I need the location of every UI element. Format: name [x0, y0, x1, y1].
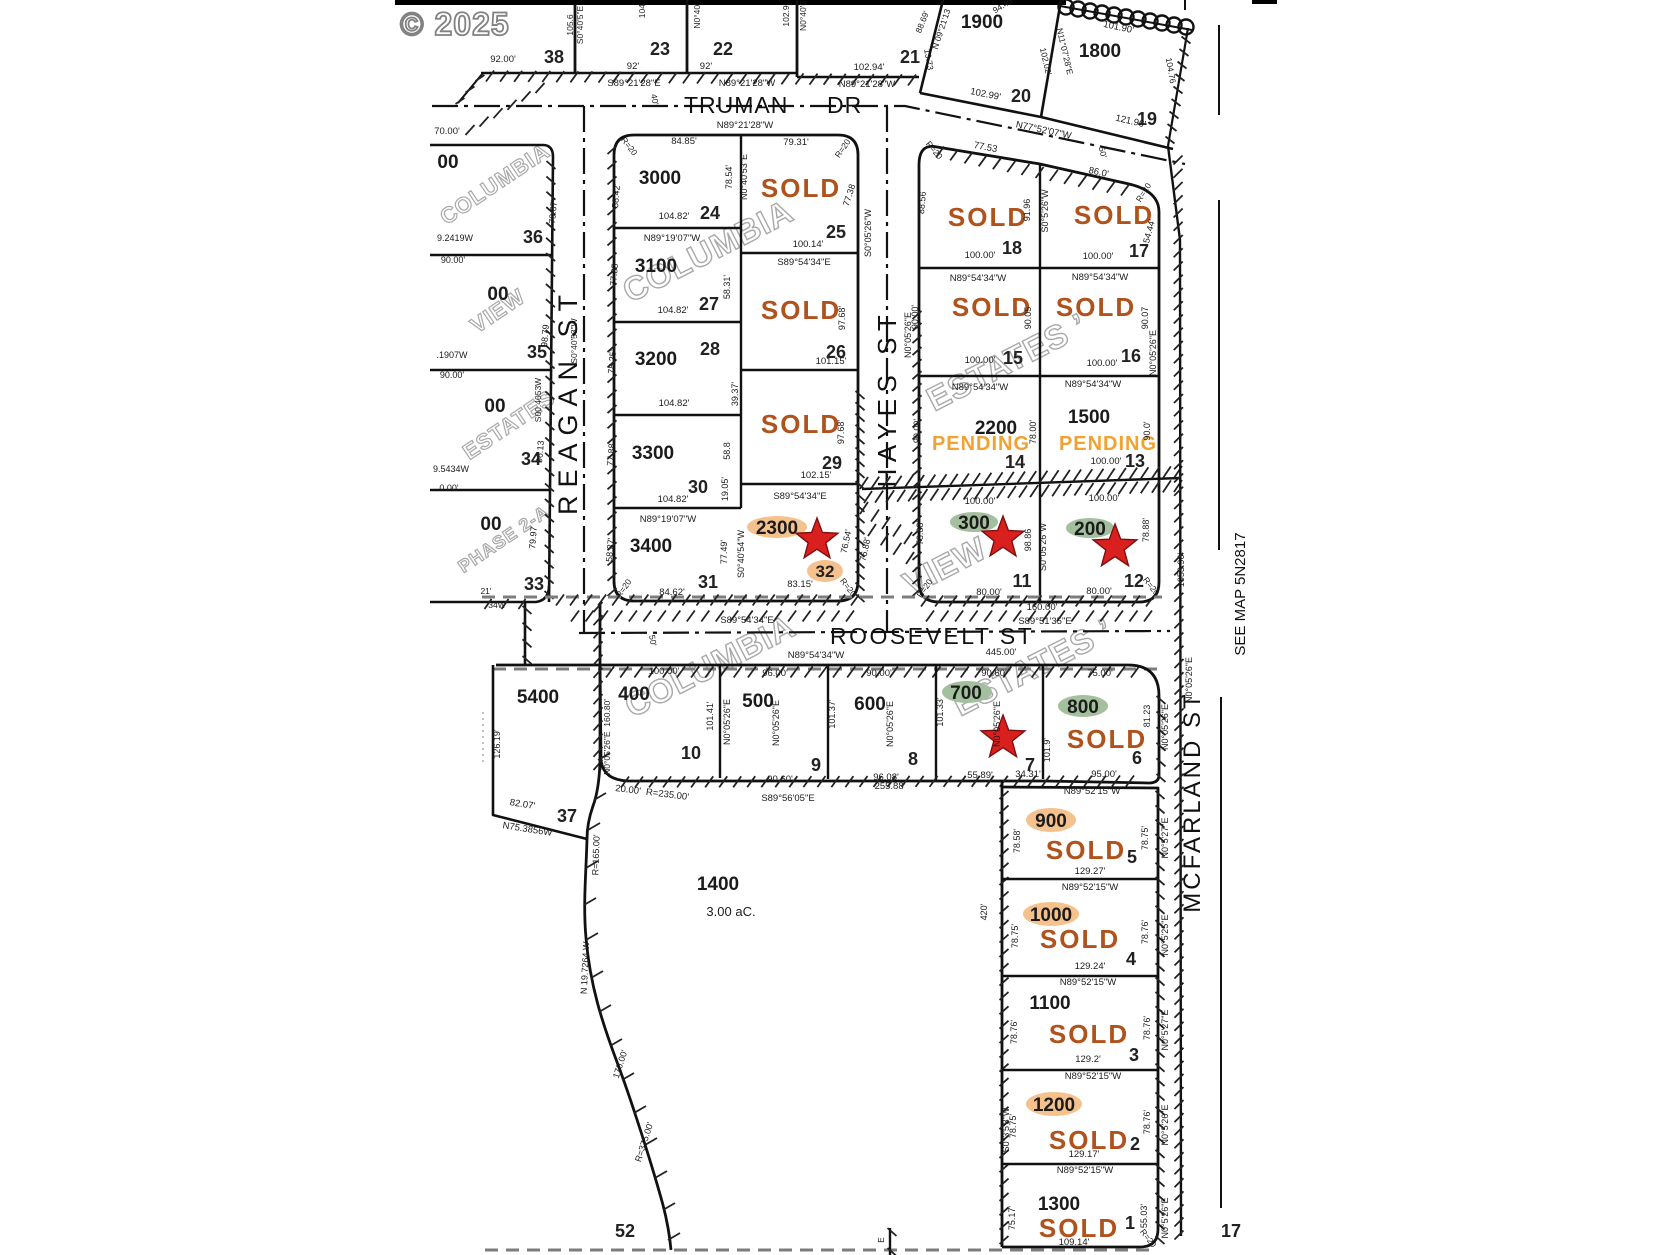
svg-text:58.8: 58.8 — [722, 442, 732, 460]
svg-text:3400: 3400 — [630, 536, 672, 557]
svg-text:19.05': 19.05' — [720, 477, 730, 502]
svg-text:90.00': 90.00' — [440, 370, 465, 380]
svg-text:101.37': 101.37' — [827, 699, 837, 729]
svg-text:50': 50' — [647, 634, 659, 647]
svg-text:3100: 3100 — [635, 256, 677, 277]
svg-text:N0°40'5: N0°40'5 — [798, 1, 808, 31]
svg-text:11: 11 — [1012, 571, 1031, 591]
svg-text:R=165.00': R=165.00' — [590, 834, 601, 876]
svg-text:S0°40'54"W: S0°40'54"W — [736, 529, 746, 578]
svg-text:0.00': 0.00' — [439, 483, 459, 493]
svg-text:S0°05'26"W: S0°05'26"W — [1038, 522, 1048, 571]
svg-text:N0°5'26"E: N0°5'26"E — [1160, 1197, 1170, 1238]
svg-text:200: 200 — [1074, 519, 1106, 540]
svg-text:100.00': 100.00' — [649, 666, 680, 677]
svg-text:98.79: 98.79 — [539, 324, 551, 347]
svg-text:17: 17 — [1129, 241, 1149, 261]
svg-text:30: 30 — [688, 477, 708, 497]
svg-text:SOLD: SOLD — [1046, 835, 1126, 865]
svg-text:1000: 1000 — [1030, 905, 1072, 926]
svg-text:.1907W: .1907W — [436, 350, 468, 360]
svg-text:100.00': 100.00' — [965, 496, 996, 507]
svg-text:77.85: 77.85 — [608, 263, 620, 286]
svg-text:79.97: 79.97 — [527, 526, 539, 549]
svg-text:N89°52'15"W: N89°52'15"W — [1057, 1165, 1114, 1176]
svg-text:100.14': 100.14' — [793, 239, 824, 250]
svg-text:39.37': 39.37' — [730, 382, 740, 407]
svg-text:9.5434W: 9.5434W — [433, 464, 470, 474]
svg-text:N0°40': N0°40' — [692, 3, 702, 29]
svg-text:SOLD: SOLD — [952, 292, 1032, 322]
svg-text:400: 400 — [618, 684, 650, 705]
svg-text:15: 15 — [1003, 348, 1023, 368]
svg-text:3200: 3200 — [635, 349, 677, 370]
svg-text:22: 22 — [713, 39, 733, 59]
svg-text:SOLD: SOLD — [761, 295, 841, 325]
svg-text:N0°5'27"E: N0°5'27"E — [1160, 817, 1170, 858]
svg-text:S89°54'34"E: S89°54'34"E — [777, 257, 830, 268]
svg-text:800: 800 — [1067, 697, 1099, 718]
svg-text:78.76': 78.76' — [1142, 1110, 1152, 1135]
svg-text:S00.4053W: S00.4053W — [533, 378, 543, 422]
svg-text:23: 23 — [650, 39, 670, 59]
svg-text:97.68': 97.68' — [836, 420, 846, 445]
svg-text:13: 13 — [1125, 451, 1145, 471]
svg-text:© 2025: © 2025 — [400, 6, 510, 42]
svg-text:SOLD: SOLD — [1056, 292, 1136, 322]
svg-text:1800: 1800 — [1079, 41, 1121, 62]
svg-text:55.89': 55.89' — [967, 770, 993, 781]
svg-text:HAYES ST: HAYES ST — [872, 309, 902, 488]
svg-text:37: 37 — [557, 806, 577, 826]
svg-text:S0°05'26"W: S0°05'26"W — [863, 208, 873, 257]
svg-text:90.00': 90.00' — [441, 255, 466, 265]
svg-text:1300: 1300 — [1038, 1194, 1080, 1215]
svg-text:96.00': 96.00' — [762, 668, 788, 679]
svg-text:78.75': 78.75' — [1010, 924, 1020, 949]
svg-text:N0°05'26"E 160.80': N0°05'26"E 160.80' — [602, 699, 612, 775]
svg-text:90.07: 90.07 — [1140, 307, 1150, 330]
svg-text:104.82': 104.82' — [658, 305, 689, 316]
svg-text:500: 500 — [742, 691, 774, 712]
svg-text:55.03': 55.03' — [1139, 1204, 1149, 1229]
svg-text:98.86: 98.86 — [1023, 529, 1033, 552]
svg-text:N0°05'26"E: N0°05'26"E — [722, 699, 732, 745]
svg-text:83.15': 83.15' — [787, 579, 813, 590]
svg-text:N89°52'15"W: N89°52'15"W — [1065, 1071, 1122, 1082]
svg-text:102.9: 102.9 — [781, 5, 791, 27]
svg-text:100.00': 100.00' — [965, 250, 996, 261]
svg-text:N0°05'26"E: N0°05'26"E — [771, 700, 781, 746]
svg-text:28: 28 — [700, 339, 720, 359]
svg-text:SEE MAP 5N2817: SEE MAP 5N2817 — [1232, 532, 1249, 655]
svg-text:N89°52'15"W: N89°52'15"W — [1062, 882, 1119, 893]
svg-text:N89°54'34"W: N89°54'34"W — [952, 382, 1009, 393]
svg-text:N89°54'34"W: N89°54'34"W — [788, 650, 845, 661]
svg-text:33: 33 — [524, 574, 544, 594]
svg-text:92': 92' — [627, 61, 640, 72]
svg-text:78.75': 78.75' — [1140, 826, 1150, 851]
svg-text:104.82': 104.82' — [659, 211, 690, 222]
svg-text:21': 21' — [480, 586, 491, 596]
svg-text:3300: 3300 — [632, 443, 674, 464]
svg-text:SOLD: SOLD — [761, 173, 841, 203]
svg-text:N89°21'28"W: N89°21'28"W — [717, 120, 774, 131]
svg-text:90.00': 90.00' — [866, 668, 892, 679]
svg-text:6: 6 — [1132, 748, 1142, 768]
svg-text:S0°40'53"W: S0°40'53"W — [569, 318, 579, 363]
svg-text:E: E — [876, 1237, 886, 1243]
svg-text:90.05: 90.05 — [1023, 307, 1033, 330]
svg-text:N89°52'15"W: N89°52'15"W — [1064, 786, 1121, 797]
svg-text:N89°54'34"W: N89°54'34"W — [1065, 379, 1122, 390]
svg-text:1100: 1100 — [1029, 993, 1070, 1014]
svg-text:N0°05'26"E: N0°05'26"E — [1160, 704, 1170, 750]
svg-text:126.19': 126.19' — [492, 729, 502, 759]
svg-text:101.33': 101.33' — [935, 697, 945, 727]
svg-text:700: 700 — [950, 683, 982, 704]
svg-text:16: 16 — [1121, 346, 1141, 366]
svg-text:17: 17 — [1221, 1221, 1241, 1241]
svg-text:34W: 34W — [488, 600, 505, 610]
svg-text:92.00': 92.00' — [490, 54, 516, 65]
svg-text:S0°5'26"W: S0°5'26"W — [1040, 189, 1050, 233]
svg-text:104.: 104. — [637, 2, 647, 19]
svg-text:101.9': 101.9' — [1042, 738, 1052, 763]
svg-text:SOLD: SOLD — [1049, 1019, 1129, 1049]
svg-text:N0°5'25"E: N0°5'25"E — [1160, 914, 1170, 955]
svg-text:78.76': 78.76' — [1009, 1020, 1019, 1045]
svg-text:36: 36 — [523, 227, 543, 247]
svg-text:104.82': 104.82' — [659, 398, 690, 409]
svg-text:00: 00 — [480, 514, 501, 535]
svg-text:ROOSEVELT ST: ROOSEVELT ST — [830, 623, 1034, 649]
svg-text:96.13: 96.13 — [534, 440, 546, 463]
svg-text:N89°54'34"W: N89°54'34"W — [1072, 272, 1129, 283]
svg-text:5400: 5400 — [517, 687, 559, 708]
svg-text:129.24': 129.24' — [1075, 961, 1106, 972]
svg-text:N0°5'27"E: N0°5'27"E — [1160, 1009, 1170, 1050]
svg-text:9: 9 — [811, 755, 821, 775]
svg-text:84.85': 84.85' — [671, 136, 697, 147]
svg-text:3.00 aC.: 3.00 aC. — [706, 904, 755, 919]
svg-text:75.00': 75.00' — [1087, 668, 1113, 679]
svg-text:40': 40' — [649, 93, 661, 106]
svg-text:97.68': 97.68' — [837, 306, 847, 331]
svg-text:N0°5'26"E: N0°5'26"E — [1160, 1104, 1170, 1145]
svg-text:2: 2 — [1130, 1134, 1140, 1154]
svg-text:00: 00 — [487, 284, 508, 305]
svg-text:100.00': 100.00' — [1089, 493, 1120, 504]
svg-text:5: 5 — [1127, 847, 1137, 867]
svg-text:N0°40'53"E: N0°40'53"E — [739, 154, 749, 200]
svg-text:DR: DR — [827, 92, 862, 118]
svg-text:9.2419W: 9.2419W — [437, 233, 474, 243]
svg-text:79.31': 79.31' — [783, 137, 809, 148]
svg-text:00: 00 — [437, 152, 458, 173]
svg-text:92': 92' — [700, 61, 713, 72]
svg-text:58.31': 58.31' — [722, 275, 732, 300]
svg-text:25: 25 — [826, 222, 846, 242]
svg-text:77.88: 77.88 — [605, 443, 617, 466]
svg-text:129.2': 129.2' — [1075, 1054, 1101, 1065]
svg-text:1900: 1900 — [961, 12, 1003, 33]
svg-text:1400: 1400 — [697, 874, 739, 895]
svg-text:N0°05'26"E: N0°05'26"E — [1184, 657, 1194, 703]
svg-text:80.00': 80.00' — [1086, 586, 1112, 597]
svg-text:105.6: 105.6 — [565, 14, 575, 36]
svg-text:129.27': 129.27' — [1075, 866, 1106, 877]
svg-text:S0°40'5"E: S0°40'5"E — [575, 6, 585, 45]
svg-text:58.37': 58.37' — [604, 537, 616, 562]
svg-text:78.76': 78.76' — [1142, 1016, 1152, 1041]
svg-text:N0°05'26"E: N0°05'26"E — [992, 701, 1002, 747]
svg-text:1200: 1200 — [1033, 1095, 1075, 1116]
svg-text:31: 31 — [698, 572, 718, 592]
svg-text:75.17': 75.17' — [1007, 1206, 1017, 1231]
svg-text:21: 21 — [900, 47, 920, 67]
svg-text:78.54': 78.54' — [724, 165, 734, 190]
svg-text:77.49': 77.49' — [719, 540, 729, 565]
svg-text:102.15': 102.15' — [801, 470, 832, 481]
svg-text:78.58': 78.58' — [1012, 829, 1022, 854]
svg-text:N89°19'07"W: N89°19'07"W — [644, 233, 701, 244]
svg-text:2300: 2300 — [756, 518, 798, 539]
svg-text:4: 4 — [1126, 949, 1136, 969]
svg-text:90.60': 90.60' — [981, 668, 1007, 679]
svg-text:3: 3 — [1129, 1045, 1139, 1065]
svg-text:SOLD: SOLD — [1074, 200, 1154, 230]
svg-text:70.00': 70.00' — [434, 126, 460, 137]
svg-text:8: 8 — [908, 749, 918, 769]
svg-text:104.82': 104.82' — [658, 494, 689, 505]
svg-text:109.14': 109.14' — [1059, 1237, 1090, 1248]
svg-text:14: 14 — [1005, 452, 1025, 472]
svg-text:SOLD: SOLD — [948, 202, 1028, 232]
svg-text:101.15': 101.15' — [816, 356, 847, 367]
svg-text:N0°05'26"E: N0°05'26"E — [885, 701, 895, 747]
svg-text:100.00': 100.00' — [1083, 251, 1114, 262]
svg-text:101.41': 101.41' — [705, 701, 715, 731]
svg-text:900: 900 — [1035, 811, 1067, 832]
svg-text:N89°52'15"W: N89°52'15"W — [1060, 977, 1117, 988]
svg-text:SOLD: SOLD — [1040, 924, 1120, 954]
svg-text:18: 18 — [1002, 238, 1022, 258]
svg-text:N89°19'07"W: N89°19'07"W — [640, 514, 697, 525]
svg-text:600: 600 — [854, 694, 886, 715]
svg-text:78.76': 78.76' — [1140, 920, 1150, 945]
svg-text:78.88': 78.88' — [1141, 518, 1151, 543]
svg-text:S89°54'34"E: S89°54'34"E — [720, 615, 773, 626]
svg-text:58.42': 58.42' — [610, 183, 622, 208]
svg-text:100.00': 100.00' — [1087, 358, 1118, 369]
svg-text:SOLD: SOLD — [761, 409, 841, 439]
svg-text:445.00': 445.00' — [986, 647, 1017, 658]
svg-text:90.0': 90.0' — [1142, 421, 1152, 441]
svg-text:78.25': 78.25' — [606, 349, 618, 374]
svg-text:38: 38 — [544, 47, 564, 67]
svg-text:TRUMAN: TRUMAN — [684, 92, 788, 118]
svg-text:27: 27 — [699, 294, 719, 314]
svg-text:1: 1 — [1125, 1213, 1135, 1233]
svg-text:00: 00 — [484, 396, 505, 417]
svg-text:78.00': 78.00' — [1028, 420, 1038, 445]
svg-text:1500: 1500 — [1068, 407, 1110, 428]
svg-text:52: 52 — [615, 1221, 635, 1241]
svg-text:420': 420' — [979, 903, 989, 920]
svg-text:MCFARLAND ST: MCFARLAND ST — [1179, 691, 1206, 912]
svg-text:24: 24 — [700, 203, 720, 223]
svg-text:88.56: 88.56 — [916, 191, 928, 214]
svg-text:S0°3'5'3"W: S0°3'5'3"W — [1001, 1107, 1011, 1152]
svg-text:10: 10 — [681, 743, 701, 763]
svg-text:81.23: 81.23 — [1142, 705, 1152, 728]
svg-text:100.00': 100.00' — [965, 355, 996, 366]
svg-text:91.96: 91.96 — [1022, 199, 1032, 222]
svg-text:32: 32 — [816, 562, 835, 581]
svg-text:S89°54'34"E: S89°54'34"E — [773, 491, 826, 502]
svg-text:20: 20 — [1011, 86, 1031, 106]
svg-text:3000: 3000 — [639, 168, 681, 189]
svg-text:79.67': 79.67' — [547, 199, 559, 224]
svg-text:129.17': 129.17' — [1069, 1149, 1100, 1160]
svg-text:N0°05'26"E: N0°05'26"E — [1148, 330, 1158, 376]
svg-text:N89°54'34"W: N89°54'34"W — [950, 273, 1007, 284]
svg-text:100.00': 100.00' — [1091, 456, 1122, 467]
svg-text:160.00': 160.00' — [1027, 602, 1058, 613]
svg-text:S89°56'05"E: S89°56'05"E — [761, 793, 814, 804]
svg-text:102.94': 102.94' — [854, 62, 885, 73]
